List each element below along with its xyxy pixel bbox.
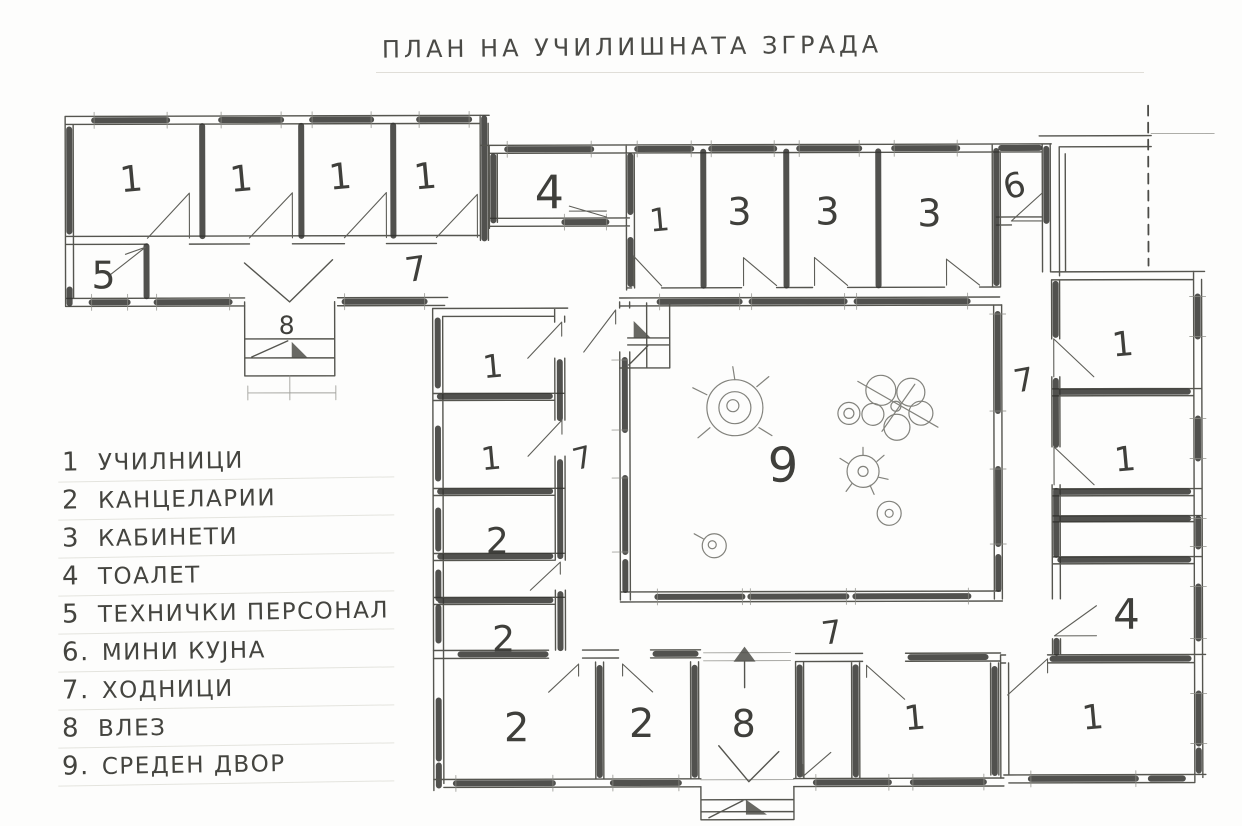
room-number: 7 <box>402 248 429 291</box>
door-swing-courtyard-west <box>584 310 616 352</box>
legend-item-number: 6. <box>62 638 90 667</box>
legend-item-label: ТЕХНИЧКИ ПЕРСОНАЛ <box>98 596 390 630</box>
legend-item-number: 9. <box>62 752 90 781</box>
legend-item-label: УЧИЛНИЦИ <box>98 447 244 478</box>
room-number: 2 <box>629 701 655 747</box>
legend-item-number: 3 <box>62 524 86 553</box>
legend-item-number: 5 <box>62 600 86 629</box>
stair-arrow-icon <box>634 321 651 338</box>
north-wing <box>480 140 1051 310</box>
legend: 1 УЧИЛНИЦИ 2 КАНЦЕЛАРИИ 3 КАБИНЕТИ 4 ТОА… <box>58 442 394 784</box>
legend-item-number: 2 <box>62 486 86 515</box>
stair-arrow-icon <box>292 342 308 358</box>
room-number: 8 <box>732 702 756 746</box>
stair-arrow-icon <box>734 647 756 662</box>
room-number: 2 <box>492 619 515 660</box>
legend-item: 5 ТЕХНИЧКИ ПЕРСОНАЛ <box>58 591 395 634</box>
legend-item-number: 7. <box>62 676 90 705</box>
title-underline <box>376 72 1144 73</box>
legend-item: 8 ВЛЕЗ <box>58 705 395 748</box>
room-number: 1 <box>481 347 505 387</box>
room-number: 4 <box>535 165 564 219</box>
northeast-porch <box>1039 105 1214 275</box>
room-number: 3 <box>727 190 751 234</box>
legend-item-number: 1 <box>62 448 86 477</box>
page-title: ПЛАН НА УЧИЛИШНАТА ЗГРАДА <box>352 30 912 64</box>
stair-arrow-icon <box>746 800 767 815</box>
room-number: 1 <box>902 697 927 739</box>
legend-item-label: КАНЦЕЛАРИИ <box>98 484 276 516</box>
room-number: 7 <box>1011 360 1038 401</box>
scanned-floor-plan-page: 11115784133367114197112222817 ПЛАН НА УЧ… <box>0 0 1242 826</box>
legend-item-label: ТОАЛЕТ <box>98 561 201 592</box>
legend-item-label: СРЕДЕН ДВОР <box>102 750 286 782</box>
legend-item-label: КАБИНЕТИ <box>98 523 239 554</box>
room-number: 6 <box>999 164 1030 208</box>
room-number: 1 <box>412 156 438 199</box>
room-number: 7 <box>569 440 596 479</box>
legend-item: 9. СРЕДЕН ДВОР <box>58 743 395 786</box>
room-number: 3 <box>815 189 839 233</box>
room-number: 2 <box>504 705 530 751</box>
room-number: 9 <box>768 438 799 494</box>
legend-item-label: МИНИ КУЈНА <box>102 636 266 668</box>
legend-item: 2 КАНЦЕЛАРИИ <box>58 477 395 520</box>
door-swings-north <box>569 193 1042 286</box>
room-number: 1 <box>228 158 254 201</box>
room-number: 1 <box>1112 439 1137 481</box>
legend-item-label: ХОДНИЦИ <box>102 675 234 706</box>
room-number: 1 <box>118 158 144 201</box>
legend-item-number: 4 <box>62 562 86 591</box>
room-number: 2 <box>486 521 509 562</box>
room-number: 3 <box>917 191 941 235</box>
room-number: 1 <box>648 200 672 240</box>
room-number: 4 <box>1113 590 1140 639</box>
room-number: 1 <box>327 156 353 199</box>
courtyard-plants <box>693 366 938 558</box>
room-number: 1 <box>479 439 503 479</box>
legend-item: 3 КАБИНЕТИ <box>58 515 395 558</box>
room-number: 1 <box>1080 697 1105 739</box>
room-number: 8 <box>279 311 295 340</box>
legend-item: 1 УЧИЛНИЦИ <box>58 439 395 482</box>
room-number: 7 <box>819 612 845 653</box>
legend-item-number: 8 <box>62 714 86 743</box>
room-number: 1 <box>1110 324 1135 366</box>
legend-item: 4 ТОАЛЕТ <box>58 553 395 596</box>
legend-item-label: ВЛЕЗ <box>98 714 167 744</box>
legend-item: 7. ХОДНИЦИ <box>58 667 395 710</box>
legend-item: 6. МИНИ КУЈНА <box>58 629 395 672</box>
east-wing <box>1000 271 1207 787</box>
room-number: 5 <box>91 253 115 297</box>
